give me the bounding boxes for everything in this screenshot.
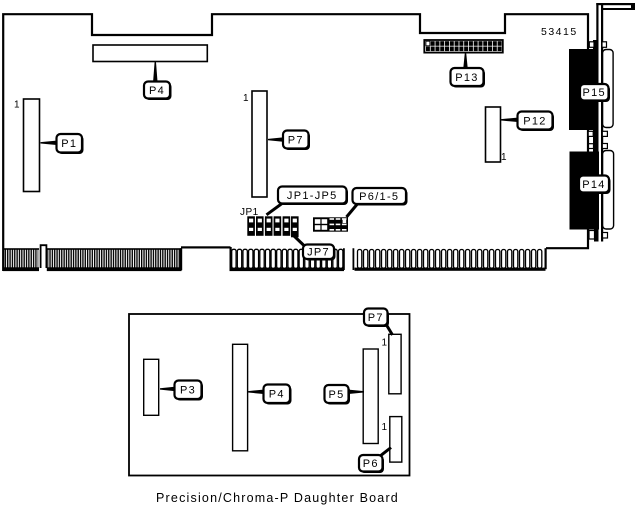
svg-text:P7: P7 (368, 312, 384, 324)
svg-text:P3: P3 (180, 385, 196, 397)
svg-text:JP1: JP1 (240, 207, 259, 218)
svg-text:P4: P4 (149, 85, 165, 97)
svg-text:1: 1 (382, 422, 388, 433)
svg-text:JP7: JP7 (307, 247, 330, 259)
svg-text:1: 1 (501, 152, 507, 163)
svg-text:Precision/Chroma-P Daughter Bo: Precision/Chroma-P Daughter Board (156, 491, 399, 505)
svg-text:1: 1 (382, 338, 388, 349)
svg-text:P4: P4 (269, 389, 285, 401)
svg-text:P15: P15 (583, 87, 606, 99)
svg-text:P5: P5 (328, 389, 344, 401)
svg-text:JP1-JP5: JP1-JP5 (287, 190, 338, 202)
svg-text:P6: P6 (363, 458, 379, 470)
svg-text:P7: P7 (288, 134, 304, 146)
svg-text:53415: 53415 (541, 26, 578, 38)
svg-text:P6/1-5: P6/1-5 (359, 191, 399, 203)
svg-text:P13: P13 (455, 72, 478, 84)
svg-text:1: 1 (14, 100, 20, 111)
svg-text:P1: P1 (61, 138, 77, 150)
svg-text:1: 1 (243, 93, 249, 104)
svg-text:P12: P12 (523, 115, 546, 127)
svg-text:P14: P14 (582, 179, 605, 191)
